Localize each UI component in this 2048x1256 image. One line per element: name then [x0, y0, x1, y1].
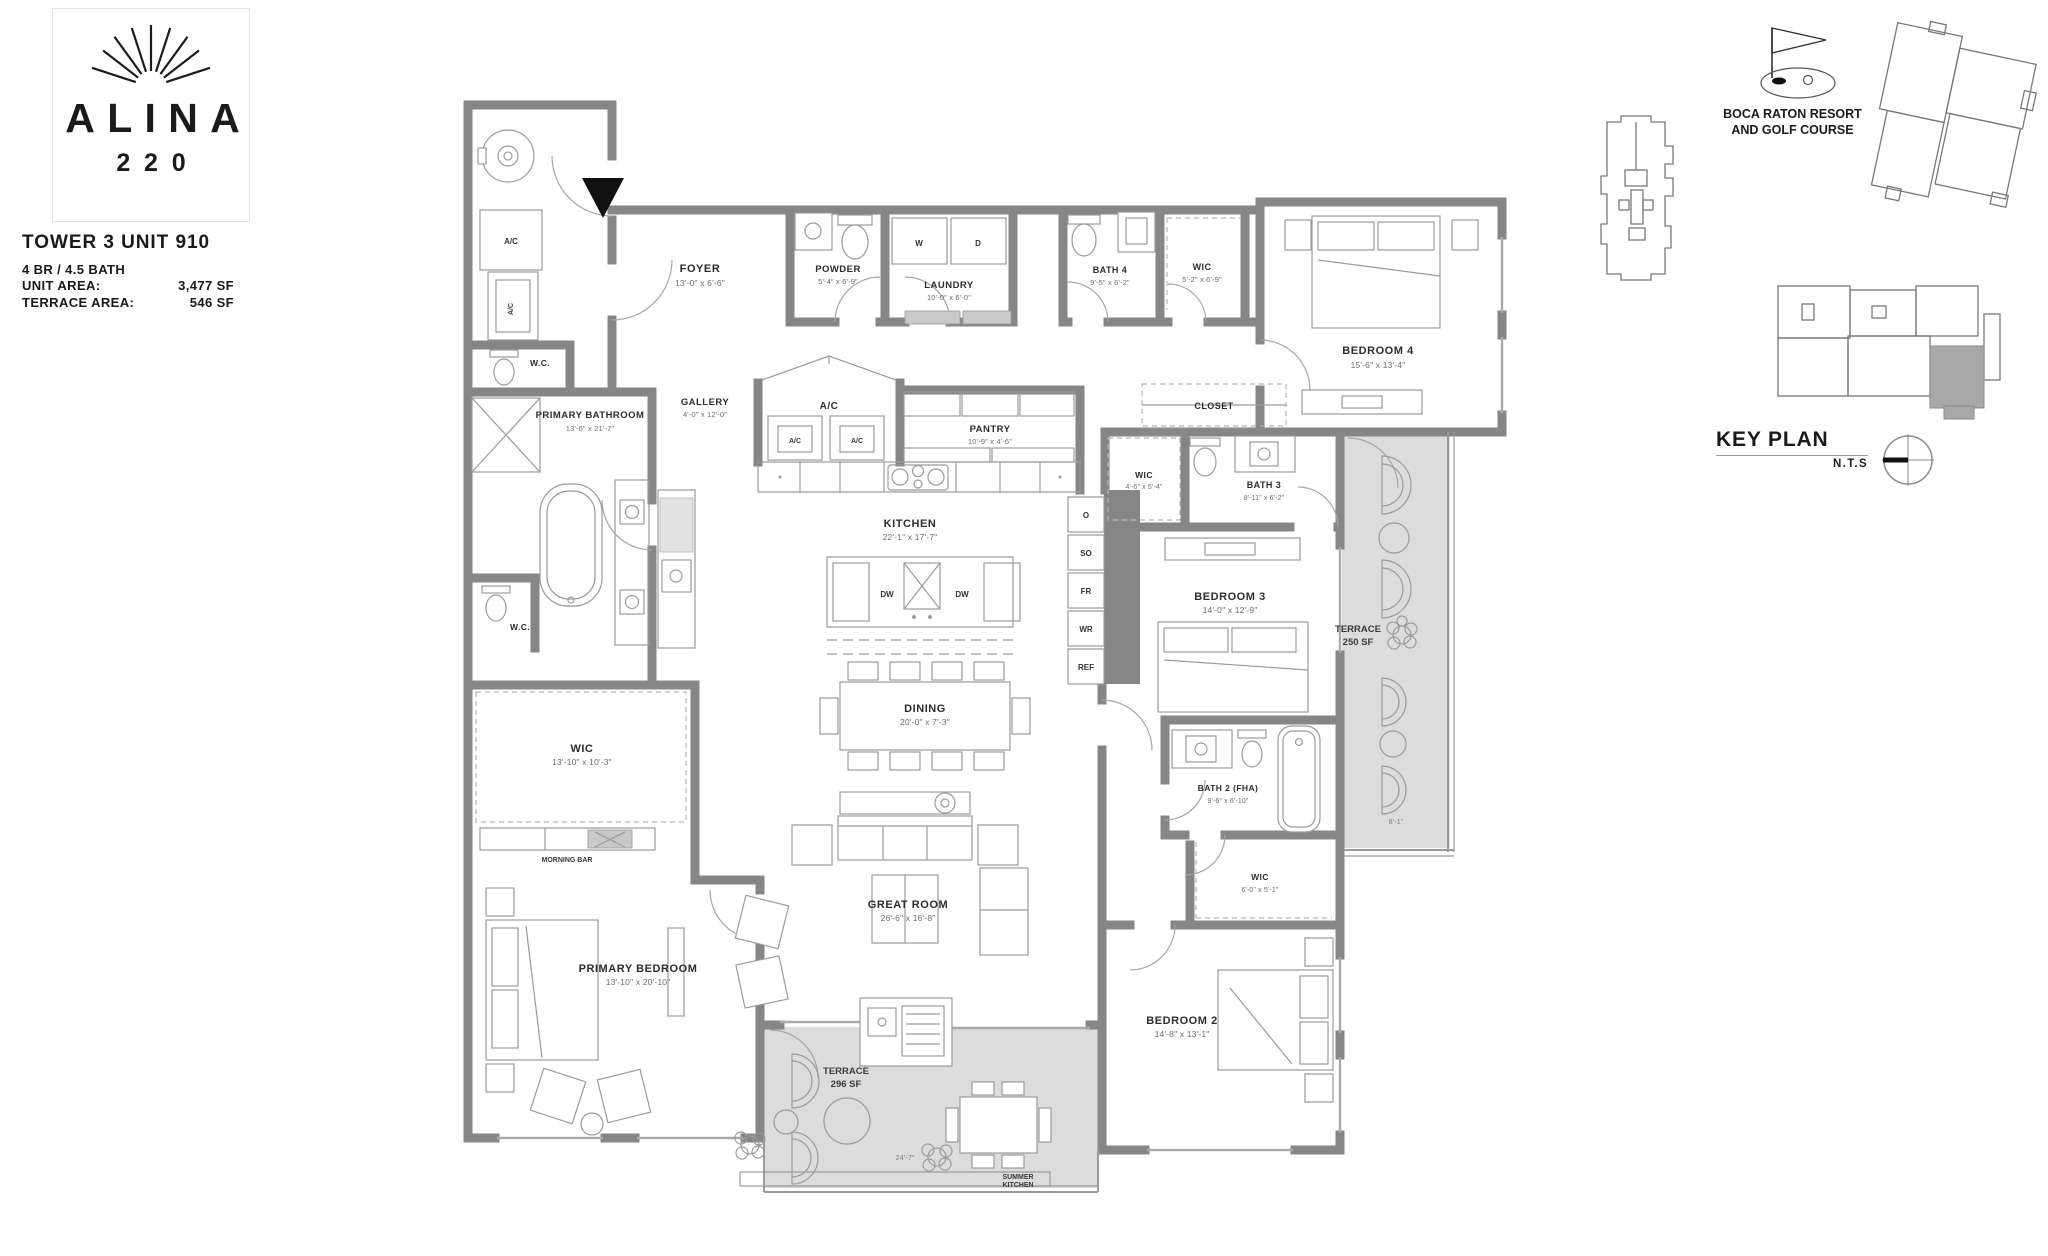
pantry-label: PANTRY [970, 424, 1011, 435]
keyplan-title-block: KEY PLAN N.T.S [1716, 428, 1868, 470]
unit-area-row: UNIT AREA: 3,477 SF [22, 278, 234, 294]
room-bedroom3: BEDROOM 3 14'-0" x 12'-9" [1158, 538, 1308, 712]
ac-unit2-label: A/C [851, 438, 863, 445]
ac-room-label: A/C [820, 401, 839, 412]
room-laundry: W D LAUNDRY 10'-0" x 6'-0" [892, 218, 1011, 324]
bath4-dims: 9'-5" x 6'-2" [1090, 278, 1130, 287]
closet-label: CLOSET [1194, 401, 1233, 411]
ac-unit-label: A/C [508, 303, 515, 315]
keyplan-tower-outline [1593, 112, 1693, 290]
oven-label: O [1083, 511, 1089, 520]
terrace-east-area-label: 250 SF [1343, 637, 1374, 648]
brand-number: 220 [67, 151, 249, 176]
wc2-label: W.C. [510, 622, 530, 632]
primary-bathroom-label: PRIMARY BATHROOM [536, 410, 645, 421]
foyer-dims: 13'-0" x 6'-6" [675, 278, 725, 288]
room-pantry: PANTRY 10'-9" x 4'-6" [904, 392, 1074, 462]
kitchen-dims: 22'-1" x 17'-7" [883, 532, 938, 542]
room-dining: DINING 20'-0" x 7'-3" [820, 662, 1030, 770]
fridge-label: FR [1081, 587, 1092, 596]
bedroom4-dims: 15'-6" x 13'-4" [1351, 360, 1406, 370]
terrace-east-label: TERRACE [1335, 624, 1381, 635]
room-ac: A/C A/C A/C [762, 356, 896, 460]
bedroom2-label: BEDROOM 2 [1146, 1015, 1218, 1027]
unit-area-label: UNIT AREA: [22, 278, 101, 294]
primary-bedroom-dims: 13'-10" x 20'-10" [606, 977, 671, 987]
dishwasher2-label: DW [955, 590, 969, 599]
primary-bedroom-label: PRIMARY BEDROOM [579, 963, 698, 975]
dishwasher1-label: DW [880, 590, 894, 599]
unit-config: 4 BR / 4.5 BATH [22, 262, 234, 278]
refrigerator-label: REF [1078, 663, 1094, 672]
wic2-label: WIC [1251, 872, 1269, 882]
powder-label: POWDER [815, 264, 861, 275]
gallery-dims: 4'-0" x 12'-0" [683, 410, 727, 419]
laundry-dims: 10'-0" x 6'-0" [927, 293, 971, 302]
keyplan-scale: N.T.S [1716, 458, 1868, 470]
unit-specs: 4 BR / 4.5 BATH UNIT AREA: 3,477 SF TERR… [22, 262, 234, 311]
room-primary-bedroom: PRIMARY BEDROOM 13'-10" x 20'-10" [486, 888, 697, 1135]
wic2-dims: 6'-0" x 5'-1" [1241, 887, 1278, 894]
powder-dims: 5'-4" x 6'-9" [818, 277, 858, 286]
bedroom4-label: BEDROOM 4 [1342, 345, 1414, 357]
great-room-dims: 26'-6" x 16'-8" [881, 913, 936, 923]
wc1-label: W.C. [530, 358, 550, 368]
bath4-label: BATH 4 [1093, 265, 1128, 275]
terrace-area-value: 546 SF [190, 295, 234, 311]
terrace-south-label: TERRACE [823, 1066, 869, 1077]
terrace-east-dim: 8'-1" [1389, 817, 1404, 826]
summer-kitchen-label1: SUMMER [1002, 1174, 1033, 1181]
room-bath4: BATH 4 9'-5" x 6'-2" [1068, 212, 1155, 287]
floorplan-sheet: ALINA 220 TOWER 3 UNIT 910 4 BR / 4.5 BA… [0, 0, 2048, 1256]
bath3-dims: 8'-11" x 6'-2" [1244, 495, 1285, 502]
room-wc1: W.C. [490, 350, 550, 385]
bedroom3-dims: 14'-0" x 12'-9" [1203, 605, 1258, 615]
brand-name: ALINA [65, 98, 249, 139]
kitchen-label: KITCHEN [884, 518, 937, 530]
unit-area-value: 3,477 SF [178, 278, 234, 294]
bath2-dims: 9'-6" x 6'-10" [1207, 798, 1248, 805]
gallery-label: GALLERY [681, 397, 730, 408]
room-bedroom4: BEDROOM 4 15'-6" x 13'-4" [1285, 216, 1478, 414]
wic4-dims: 5'-2" x 6'-9" [1182, 275, 1222, 284]
summer-kitchen-label2: KITCHEN [1002, 1182, 1033, 1189]
room-wic-primary: WIC 13'-10" x 10'-3" [476, 692, 686, 822]
wic3-dims: 4'-6" x 5'-4" [1125, 484, 1162, 491]
floor-plan: A/C A/C FOYER 13'-0" x 6'-6" POWDER 5'-4… [440, 60, 1560, 1240]
terrace-area-label: TERRACE AREA: [22, 295, 134, 311]
terrace-south-dim: 24'-7" [895, 1153, 914, 1162]
appliance-column: O SO FR WR REF [1068, 497, 1104, 684]
wic-primary-dims: 13'-10" x 10'-3" [552, 757, 612, 767]
wic3-label: WIC [1135, 470, 1153, 480]
dining-label: DINING [904, 703, 946, 715]
terrace-area-row: TERRACE AREA: 546 SF [22, 295, 234, 311]
room-gallery: GALLERY 4'-0" x 12'-0" [681, 397, 730, 419]
pantry-dims: 10'-9" x 4'-6" [968, 437, 1012, 446]
room-bath2: BATH 2 (FHA) 9'-6" x 6'-10" [1172, 726, 1320, 832]
room-wic2: WIC 6'-0" x 5'-1" [1196, 842, 1332, 918]
room-foyer: FOYER 13'-0" x 6'-6" [675, 263, 725, 288]
room-kitchen: KITCHEN 22'-1" x 17'-7" DW DW [658, 462, 1080, 654]
bath3-label: BATH 3 [1247, 480, 1282, 490]
keyplan-highlighted-unit [1930, 346, 1984, 408]
sunburst-icon [66, 17, 236, 93]
bath2-label: BATH 2 (FHA) [1198, 783, 1259, 793]
room-bedroom2: BEDROOM 2 14'-8" x 13'-1" [1146, 938, 1333, 1102]
brand-logo: ALINA 220 [52, 8, 250, 222]
terrace-south-area-label: 296 SF [831, 1079, 862, 1090]
wall-mass [1104, 490, 1140, 684]
foyer-label: FOYER [680, 263, 721, 275]
morning-bar: MORNING BAR [480, 828, 655, 864]
dryer-label: D [975, 239, 981, 248]
keyplan-rule [1716, 455, 1868, 456]
laundry-label: LAUNDRY [924, 280, 974, 291]
wic4-label: WIC [1193, 262, 1212, 272]
morning-bar-label: MORNING BAR [542, 857, 593, 864]
dining-dims: 20'-0" x 7'-3" [900, 717, 950, 727]
wine-label: WR [1079, 625, 1093, 634]
speed-oven-label: SO [1080, 549, 1092, 558]
room-wc2: W.C. [482, 586, 530, 632]
keyplan-title: KEY PLAN [1716, 428, 1868, 452]
keyplan-building-unit [1766, 276, 2016, 428]
bedroom2-dims: 14'-8" x 13'-1" [1155, 1029, 1210, 1039]
primary-bathroom-dims: 13'-6" x 21'-7" [566, 424, 615, 433]
room-wic4: WIC 5'-2" x 6'-9" [1167, 218, 1240, 310]
vestibule: A/C A/C [478, 130, 542, 340]
unit-title: TOWER 3 UNIT 910 [22, 232, 302, 254]
keyplan-building-tilted [1858, 18, 2043, 248]
great-room-label: GREAT ROOM [868, 899, 948, 911]
golf-flag-icon [1748, 20, 1848, 104]
bedroom3-label: BEDROOM 3 [1194, 591, 1266, 603]
room-powder: POWDER 5'-4" x 6'-9" [795, 213, 872, 286]
wic-primary-label: WIC [570, 743, 593, 755]
ac-closet-label: A/C [504, 237, 518, 246]
washer-label: W [915, 239, 923, 248]
compass-icon [1878, 430, 1938, 490]
ac-unit1-label: A/C [789, 438, 801, 445]
room-great-room: GREAT ROOM 26'-6" x 16'-8" [735, 792, 1028, 1008]
room-bath3: BATH 3 8'-11" x 6'-2" [1190, 436, 1295, 502]
